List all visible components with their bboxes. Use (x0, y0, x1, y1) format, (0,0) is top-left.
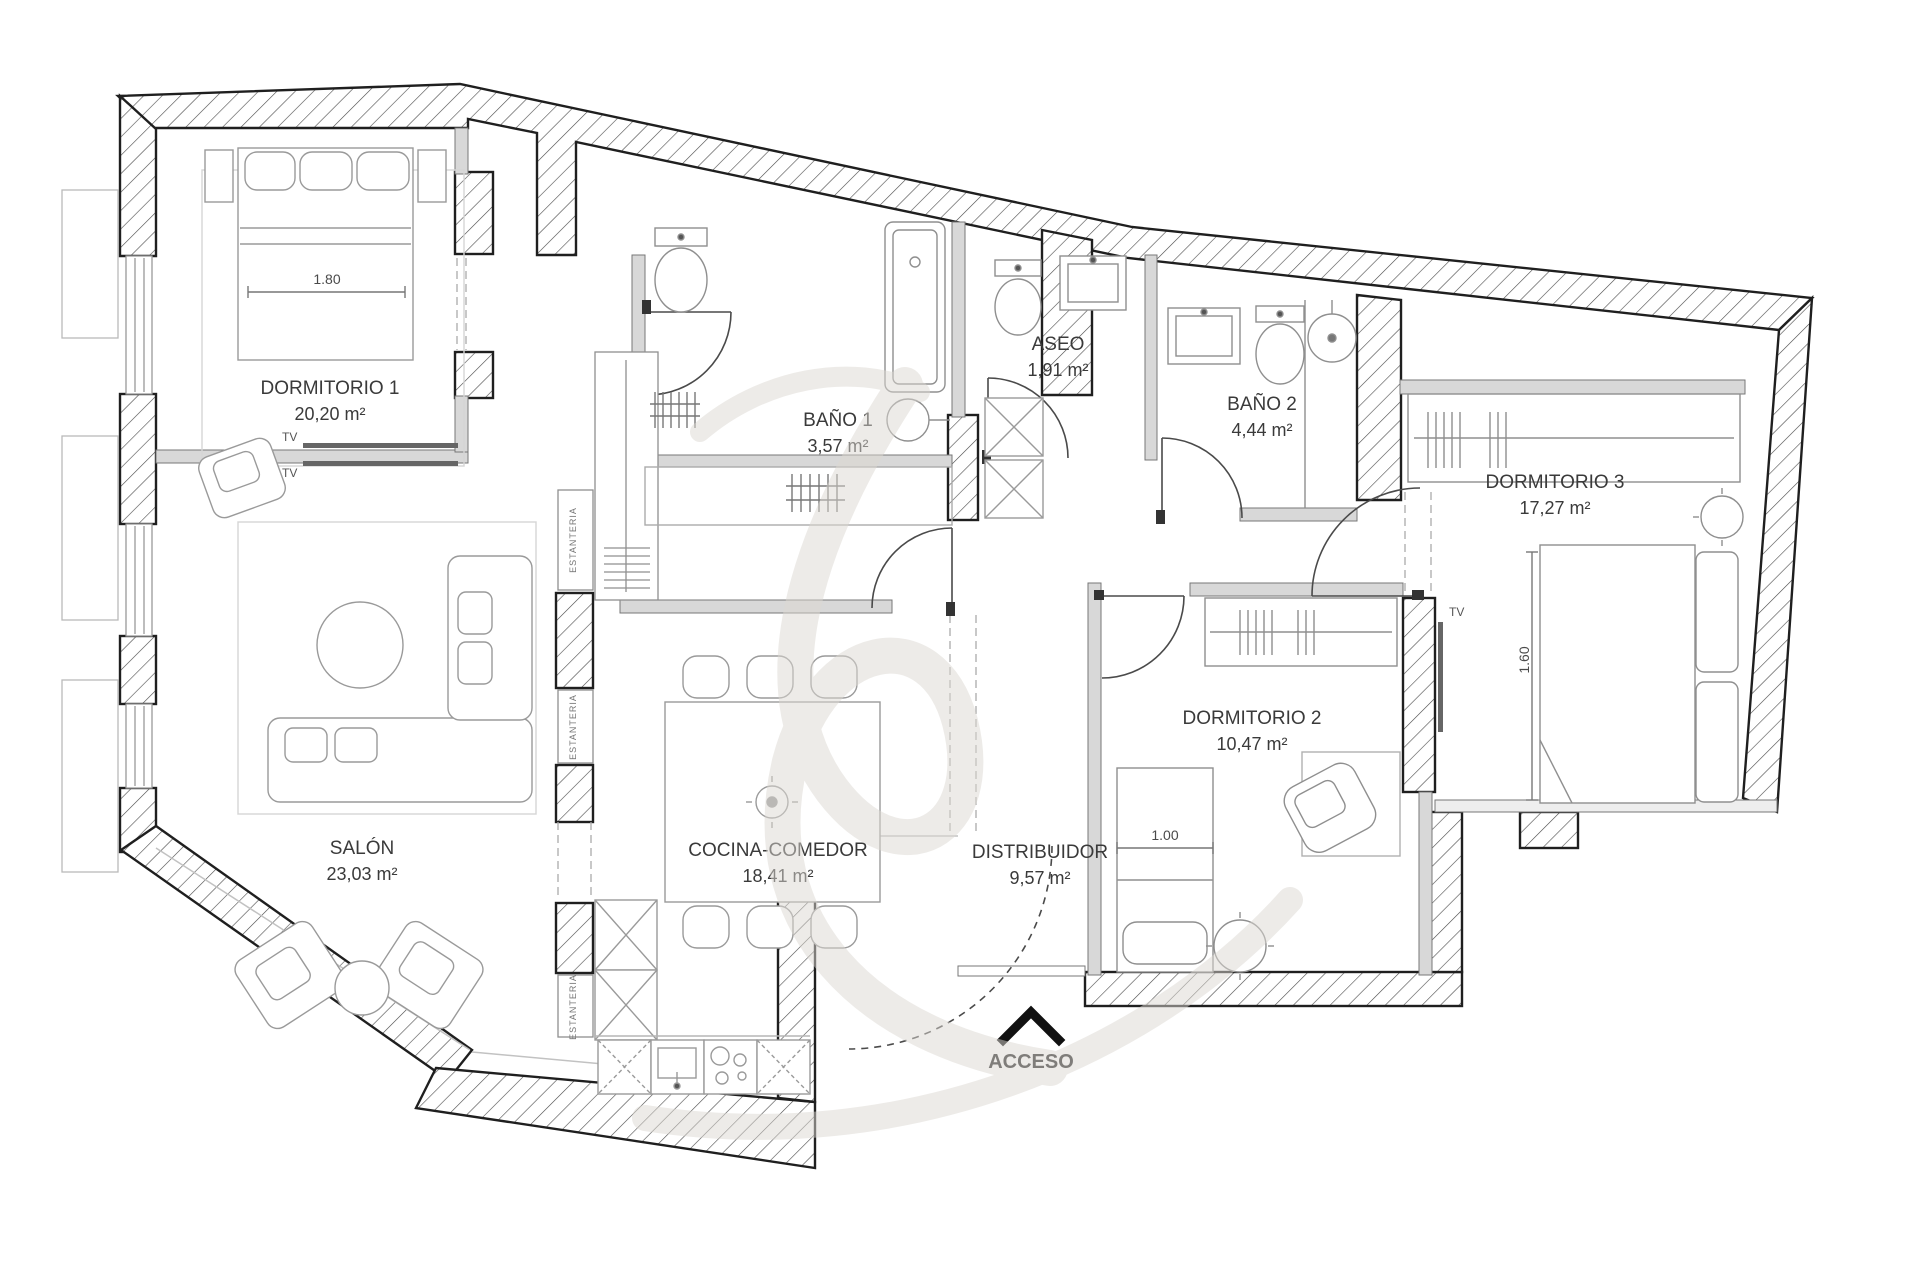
pillar-salon-b (556, 765, 593, 822)
aseo-laundry-units (985, 398, 1043, 518)
window-1 (126, 256, 152, 394)
label-dormitorio2-name: DORMITORIO 2 (1183, 708, 1322, 729)
door-dorm2 (1102, 596, 1184, 678)
label-dormitorio2-area: 10,47 m² (1216, 734, 1287, 754)
label-aseo-area: 1,91 m² (1027, 360, 1088, 380)
label-tv-salon: TV (282, 466, 297, 480)
label-shelf-a: ESTANTERIA (568, 507, 578, 573)
dorm1-bed (238, 148, 413, 360)
label-dormitorio1-area: 20,20 m² (294, 404, 365, 424)
wall-bano1-south (645, 455, 952, 467)
pillar-dorm1-b (455, 352, 493, 398)
window-3 (126, 704, 152, 788)
dorm2-bed (1117, 768, 1213, 972)
kitchen-cooktop (704, 1040, 757, 1094)
wall-left-seg3 (120, 636, 156, 704)
bano2-shower (1305, 300, 1356, 508)
dorm3-side-table (1693, 488, 1743, 546)
label-aseo-name: ASEO (1032, 334, 1085, 355)
bano1-linen-nook (645, 467, 952, 525)
salon-armchair-top (195, 435, 288, 521)
kitchen-counter (595, 1036, 810, 1094)
label-distribuidor-area: 9,57 m² (1009, 868, 1070, 888)
wall-dorm2-west (1088, 583, 1101, 975)
wall-dorm2-east-lower (1419, 792, 1432, 975)
wall-left-seg2 (120, 394, 156, 524)
label-distribuidor-name: DISTRIBUIDOR (972, 842, 1108, 863)
hall-wardrobe (595, 352, 658, 600)
label-tv-dorm1: TV (282, 430, 297, 444)
wall-kitchen-north (620, 600, 892, 613)
label-dim-dorm1: 1.80 (313, 271, 340, 287)
pillar-salon-a (556, 593, 593, 688)
kitchen-sink (651, 1040, 704, 1094)
door-bano2 (1162, 438, 1242, 518)
pillar-salon-c (556, 903, 593, 973)
dorm3-tv (1438, 622, 1443, 732)
label-dim-dorm2: 1.00 (1151, 827, 1178, 843)
label-shelf-c: ESTANTERIA (568, 974, 578, 1040)
room-salon (195, 435, 536, 1033)
wall-dorm1-east-a (455, 128, 468, 174)
salon-side-table (335, 961, 389, 1015)
entry-threshold (958, 966, 1085, 976)
wall-south-lower-right (1085, 972, 1462, 1006)
sill-box-3 (62, 680, 118, 872)
salon-coffee-table (317, 602, 403, 688)
kitchen-tall-units (595, 900, 657, 1040)
dorm3-bed-dimension (1526, 552, 1538, 800)
wall-bano1-east (952, 222, 965, 417)
dorm3-wardrobe (1408, 394, 1740, 482)
pillar-below-dorm3 (1520, 812, 1578, 848)
bano2-sink (1168, 308, 1240, 364)
sill-box-1 (62, 190, 118, 338)
door-kitchen (872, 528, 952, 608)
entrance-arrow-icon (1003, 1012, 1059, 1040)
wall-right-band (1743, 298, 1812, 812)
door-dorm3 (1312, 488, 1420, 596)
window-sill-boxes (62, 190, 118, 872)
label-dim-dorm3: 1.60 (1516, 646, 1532, 673)
bano1-toilet (655, 228, 707, 312)
label-tv-dorm3: TV (1449, 605, 1464, 619)
label-salon-name: SALÓN (330, 837, 394, 859)
sill-box-2 (62, 436, 118, 620)
wall-bano2-south (1240, 508, 1357, 521)
dorm3-bed (1540, 545, 1738, 803)
bano2-toilet (1256, 306, 1304, 384)
windows-left (62, 190, 152, 872)
dorm1-nightstand-left (205, 150, 233, 202)
salon-sofa (268, 556, 532, 802)
label-bano2-name: BAÑO 2 (1227, 393, 1297, 415)
label-dormitorio3-name: DORMITORIO 3 (1486, 472, 1625, 493)
label-salon-area: 23,03 m² (326, 864, 397, 884)
label-shelf-b: ESTANTERIA (568, 694, 578, 760)
floor-plan-page: DORMITORIO 1 20,20 m² SALÓN 23,03 m² BAÑ… (0, 0, 1920, 1280)
room-cocina (595, 656, 880, 1094)
label-dormitorio1-name: DORMITORIO 1 (261, 378, 400, 399)
wall-dorm3-north (1400, 380, 1745, 394)
door-bano1 (648, 312, 731, 395)
wall-divider-dorm2-dorm3 (1403, 598, 1435, 792)
bano1-bathtub (885, 222, 945, 392)
wall-stub-bano2-dorm3 (1357, 295, 1401, 500)
room-dormitorio3 (1408, 394, 1743, 803)
pillar-dorm1-a (455, 172, 493, 254)
dorm1-nightstand-right (418, 150, 446, 202)
label-dormitorio3-area: 17,27 m² (1519, 498, 1590, 518)
window-2 (126, 524, 152, 636)
aseo-toilet (995, 260, 1041, 335)
aseo-sink (1060, 256, 1126, 310)
floor-plan-drawing: DORMITORIO 1 20,20 m² SALÓN 23,03 m² BAÑ… (0, 0, 1920, 1280)
wall-dorm2-north (1190, 583, 1403, 596)
wall-aseo-east (1145, 255, 1157, 460)
dorm2-wardrobe (1205, 598, 1397, 666)
label-bano2-area: 4,44 m² (1231, 420, 1292, 440)
